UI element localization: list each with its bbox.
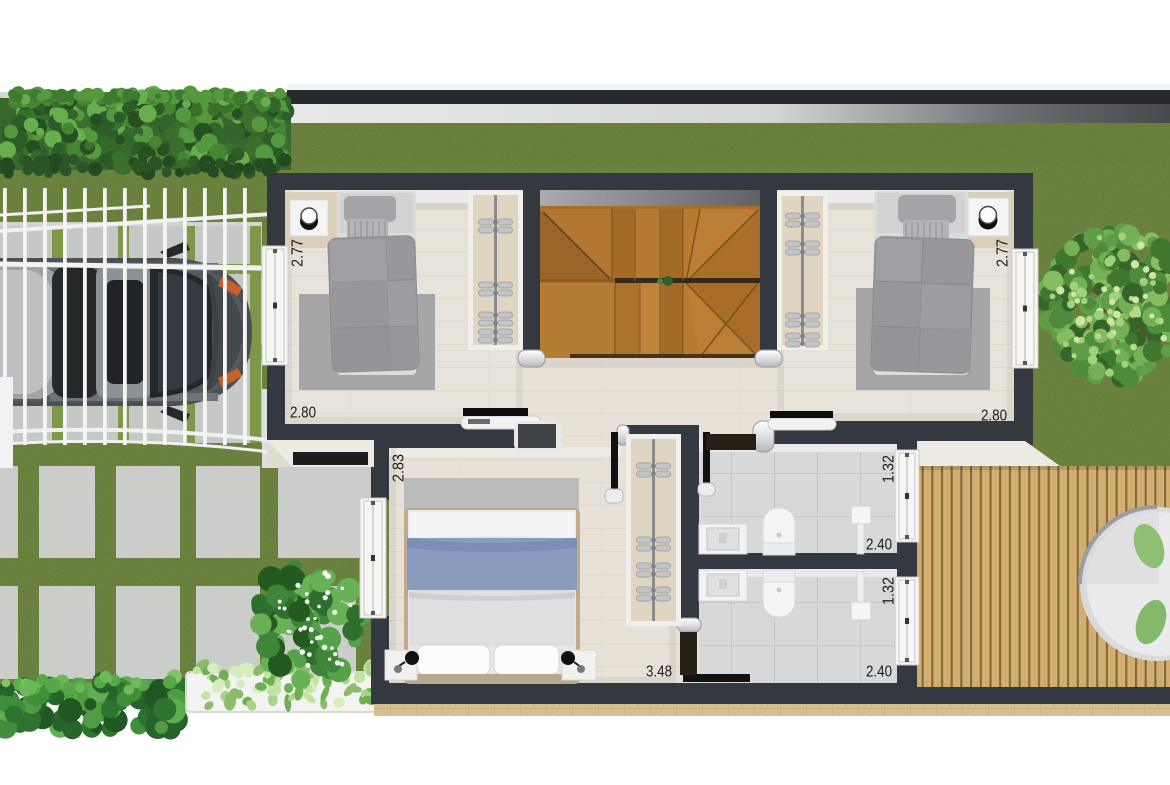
- svg-text:1.32: 1.32: [881, 577, 898, 605]
- svg-text:1.32: 1.32: [881, 455, 898, 483]
- svg-text:3.48: 3.48: [646, 664, 672, 681]
- svg-text:2.80: 2.80: [981, 408, 1007, 425]
- svg-text:2.40: 2.40: [866, 537, 892, 554]
- svg-text:2.77: 2.77: [995, 239, 1012, 267]
- svg-text:2.77: 2.77: [290, 239, 307, 267]
- svg-text:2.83: 2.83: [391, 454, 408, 482]
- svg-text:2.40: 2.40: [866, 664, 892, 681]
- svg-text:2.80: 2.80: [290, 405, 316, 422]
